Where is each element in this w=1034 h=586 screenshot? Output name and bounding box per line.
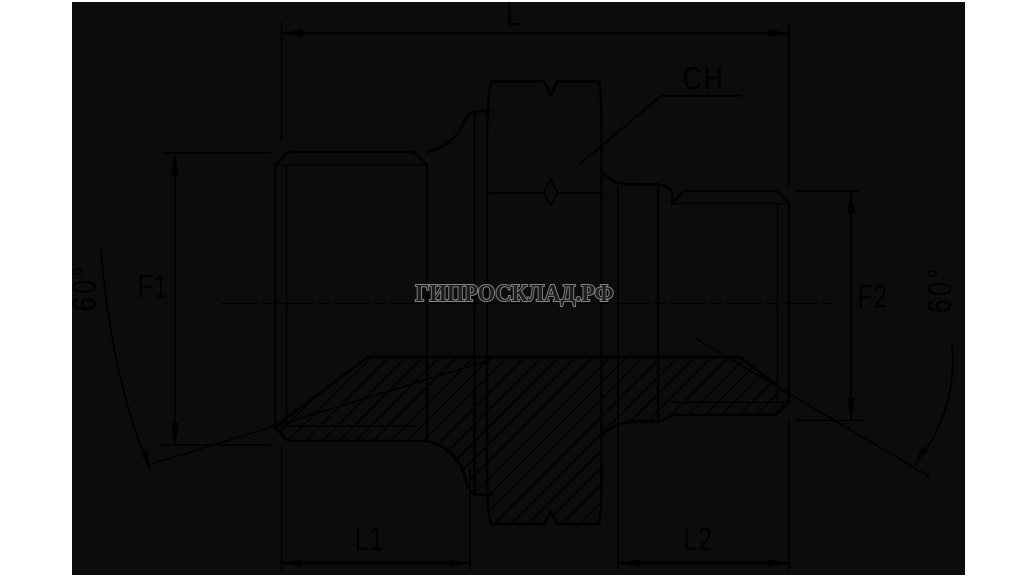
svg-text:F1: F1	[138, 269, 169, 304]
svg-text:CH: CH	[683, 62, 725, 97]
svg-text:L: L	[506, 0, 522, 33]
svg-text:ГИПРОСКЛАД.РФ: ГИПРОСКЛАД.РФ	[415, 280, 613, 307]
svg-text:L2: L2	[684, 522, 714, 557]
svg-text:L1: L1	[355, 522, 385, 557]
svg-text:F2: F2	[858, 279, 889, 314]
svg-text:60°: 60°	[922, 265, 958, 313]
svg-text:60°: 60°	[67, 263, 103, 311]
